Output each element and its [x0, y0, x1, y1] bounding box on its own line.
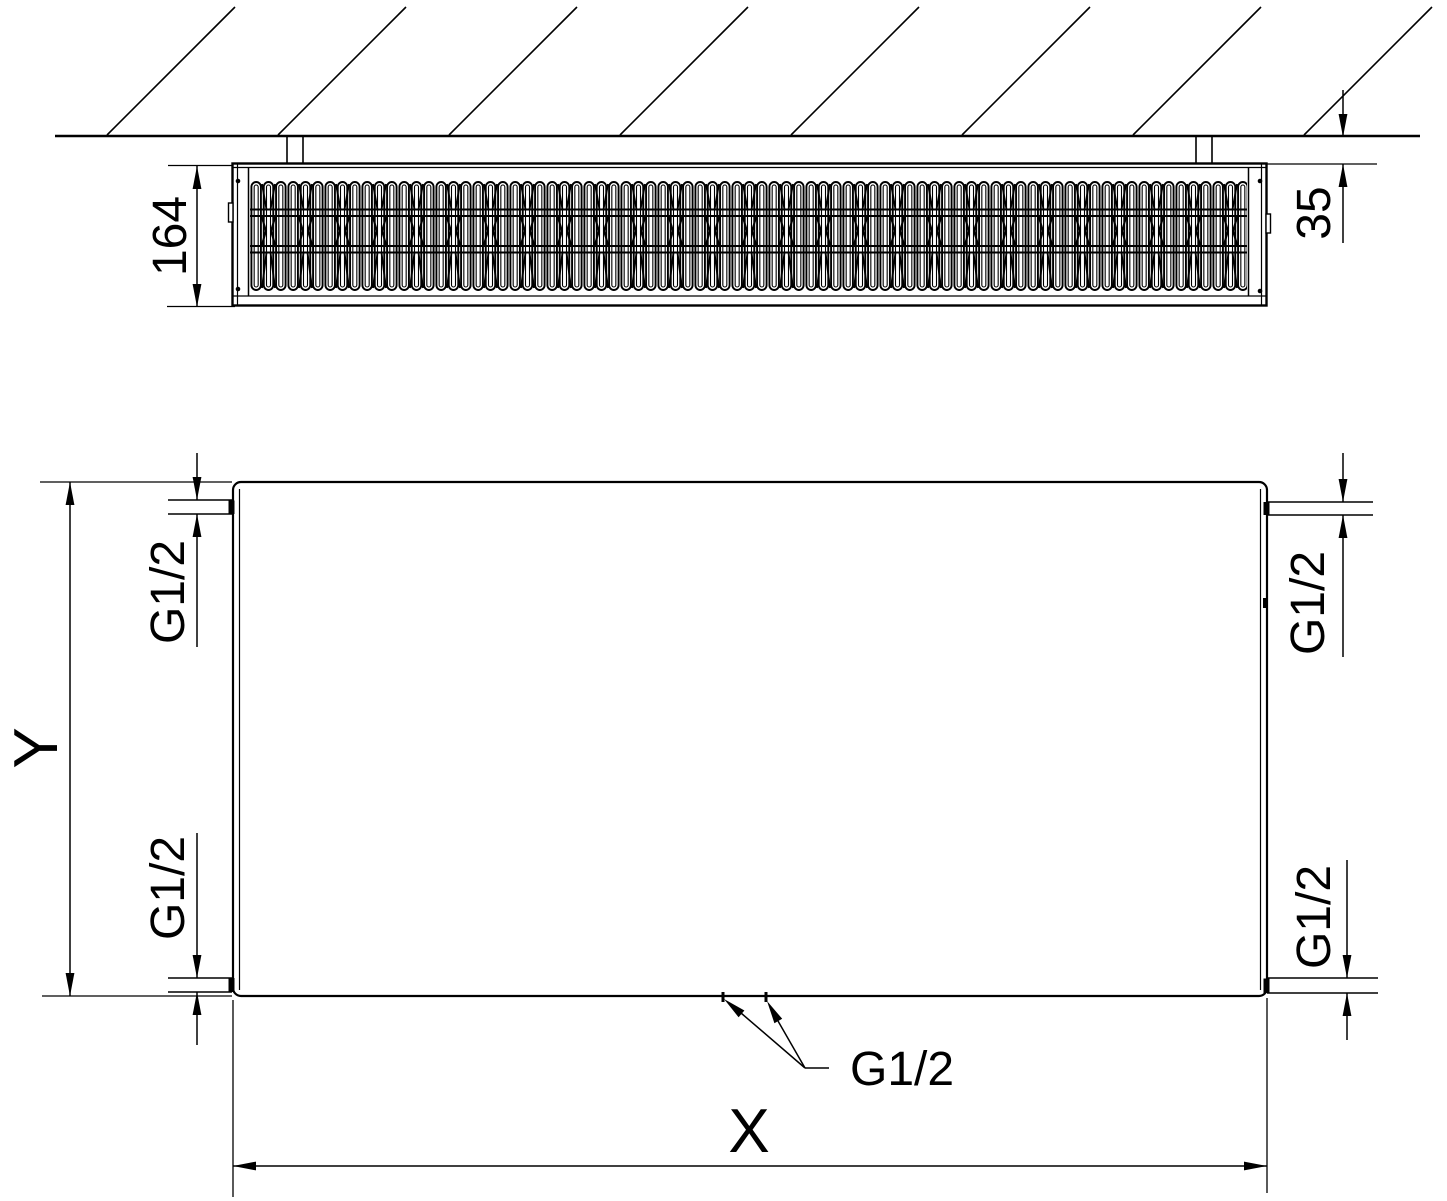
top-view-boss-right	[1266, 214, 1271, 233]
dim-depth-label: 164	[144, 196, 197, 276]
drawing-svg: 164 35 Y	[0, 0, 1447, 1201]
wall-bracket-right	[1196, 137, 1212, 163]
dim-height-label: Y	[2, 727, 71, 768]
radiator-top-view	[229, 164, 1271, 306]
wall-bracket-left	[287, 137, 303, 163]
radiator-front-view	[229, 482, 1270, 1002]
dim-width-label: X	[728, 1097, 769, 1166]
wall-section	[55, 7, 1432, 163]
front-view-outline	[233, 482, 1267, 996]
conn-top-right-label: G1/2	[1282, 551, 1335, 655]
leader-conn-bottom	[724, 999, 829, 1068]
conn-bottom-left-label: G1/2	[142, 836, 195, 940]
conn-bottom-right-label: G1/2	[1288, 865, 1341, 969]
top-view-fins	[250, 181, 1247, 291]
wall-hatching	[107, 7, 1432, 135]
top-view-boss-left	[229, 203, 234, 222]
dim-wall-distance-label: 35	[1288, 186, 1341, 239]
conn-top-left-label: G1/2	[142, 540, 195, 644]
conn-bottom-center-label: G1/2	[850, 1043, 954, 1096]
radiator-technical-drawing: 164 35 Y	[0, 0, 1447, 1201]
